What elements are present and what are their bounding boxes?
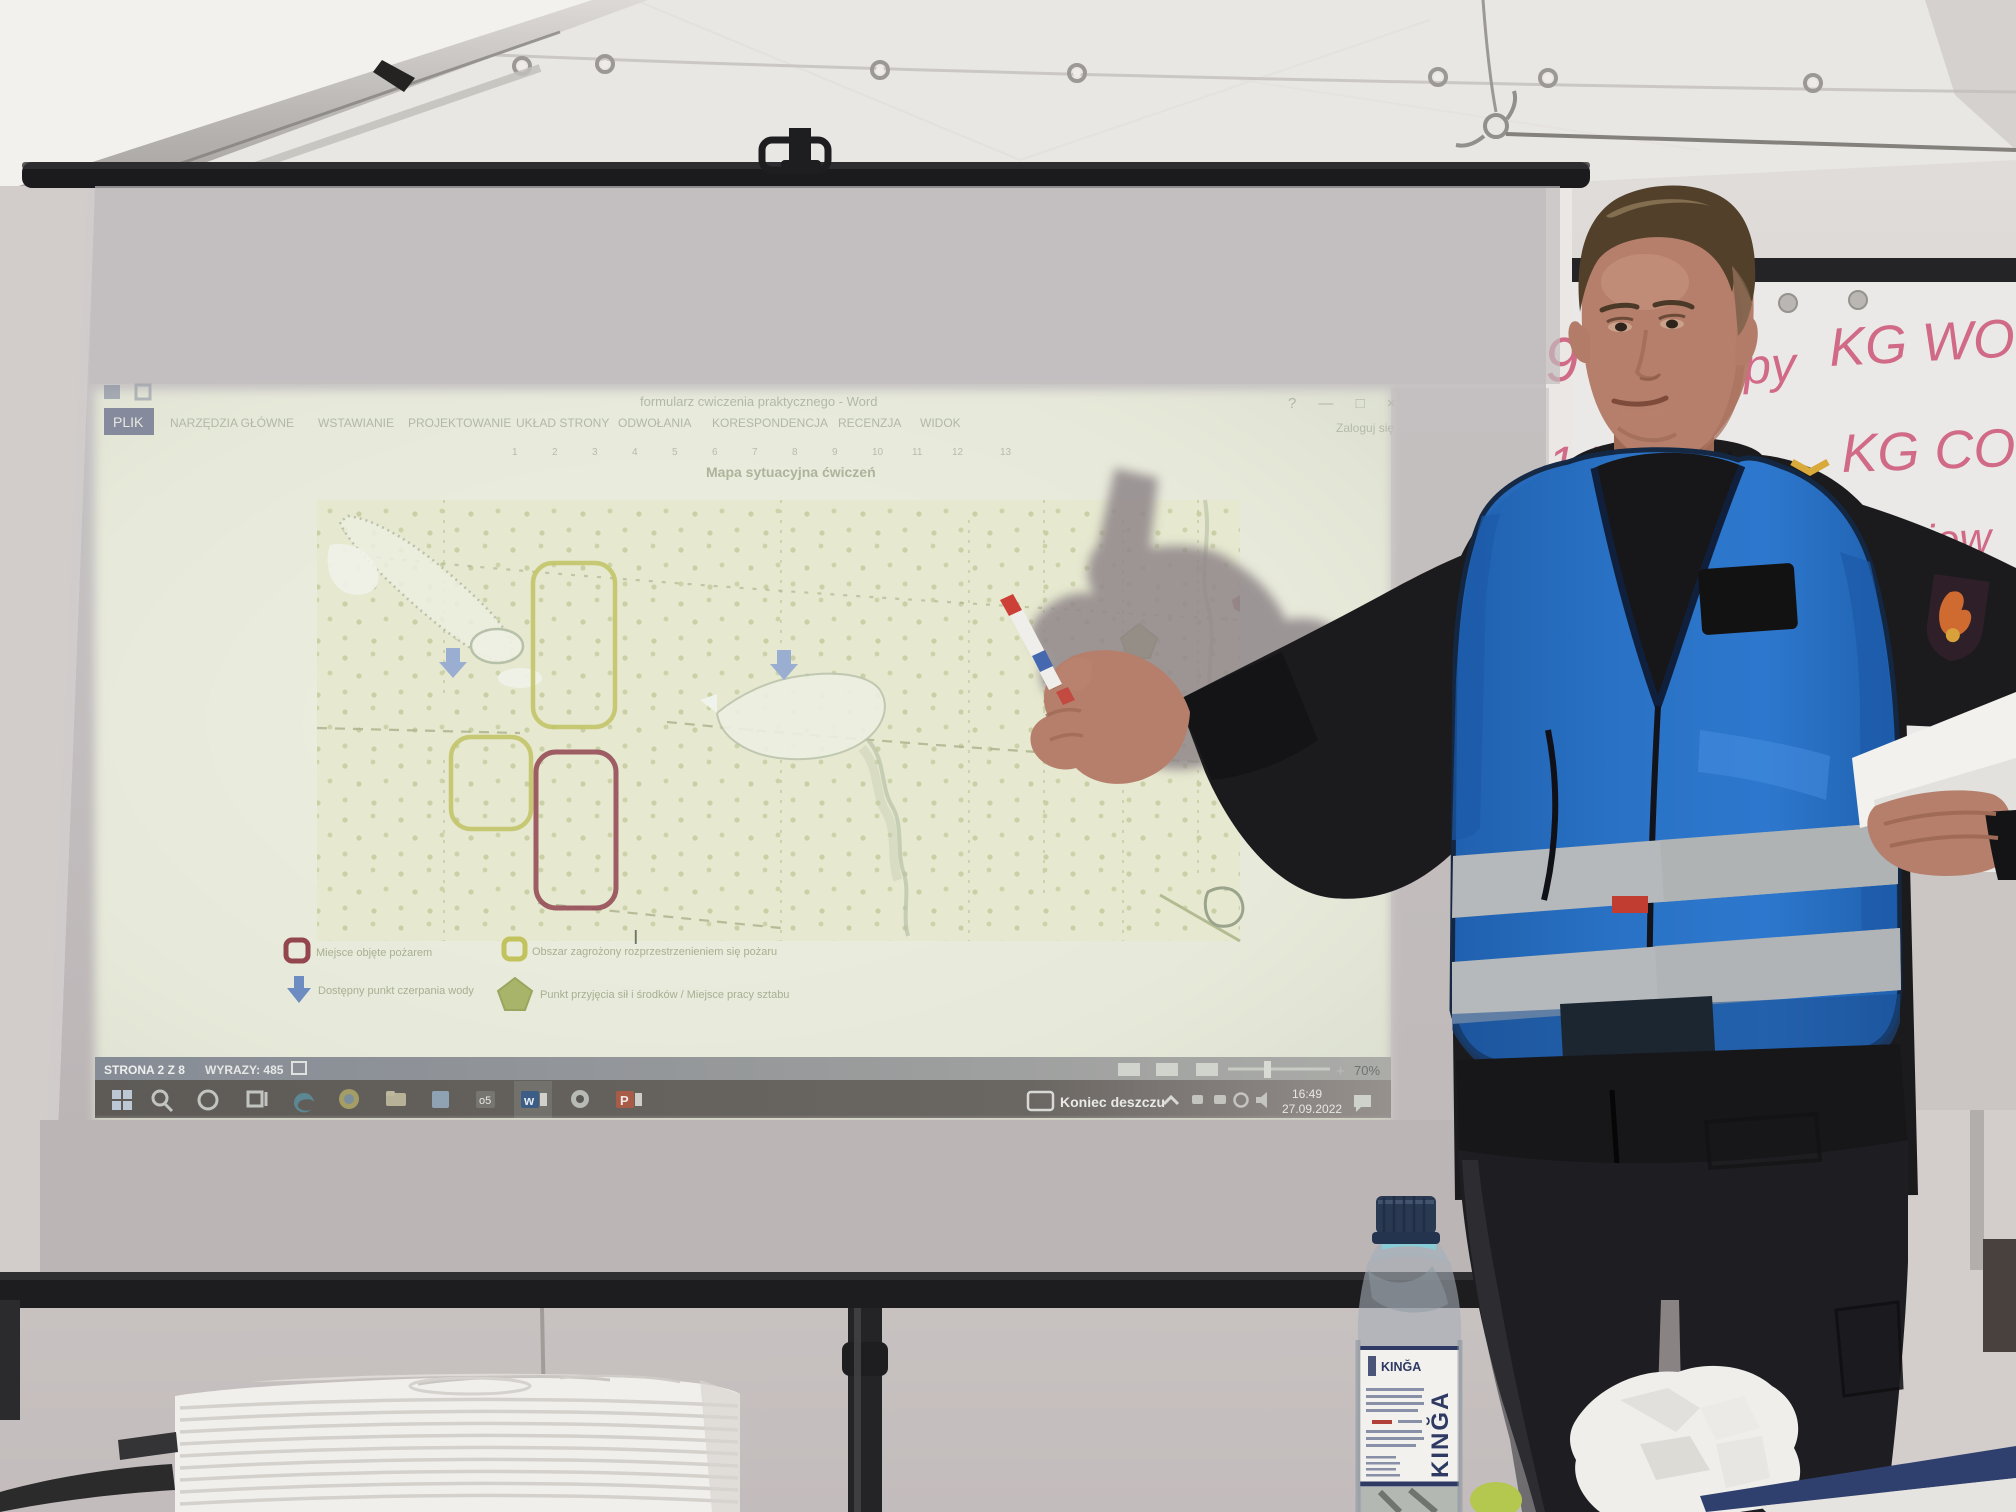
svg-text:w: w: [523, 1093, 535, 1108]
svg-text:PLIK: PLIK: [113, 414, 144, 430]
svg-text:11: 11: [912, 447, 923, 458]
svg-text:16:49: 16:49: [1292, 1087, 1322, 1101]
svg-text:STRONA 2 Z 8: STRONA 2 Z 8: [104, 1063, 185, 1077]
svg-text:9: 9: [832, 447, 838, 458]
svg-text:P: P: [620, 1093, 629, 1108]
svg-text:12: 12: [952, 447, 964, 458]
svg-text:1: 1: [512, 447, 518, 458]
svg-text:Zaloguj się: Zaloguj się: [1336, 421, 1394, 435]
svg-text:Miejsce objęte pożarem: Miejsce objęte pożarem: [316, 947, 432, 959]
svg-text:6: 6: [712, 447, 718, 458]
svg-text:27.09.2022: 27.09.2022: [1282, 1102, 1342, 1116]
svg-text:WIDOK: WIDOK: [920, 416, 961, 430]
svg-text:3: 3: [592, 447, 598, 458]
svg-text:70%: 70%: [1354, 1063, 1380, 1078]
svg-text:NARZĘDZIA GŁÓWNE: NARZĘDZIA GŁÓWNE: [170, 415, 294, 430]
svg-text:KINĞA: KINĞA: [1381, 1359, 1421, 1374]
svg-text:KG WOO: KG WOO: [1827, 306, 2016, 378]
svg-text:Koniec deszczu: Koniec deszczu: [1060, 1094, 1165, 1110]
svg-text:Dostępny punkt czerpania wody: Dostępny punkt czerpania wody: [318, 985, 474, 997]
svg-text:8: 8: [792, 447, 798, 458]
svg-text:WYRAZY: 485: WYRAZY: 485: [205, 1063, 284, 1077]
svg-text:PROJEKTOWANIE: PROJEKTOWANIE: [408, 416, 511, 430]
svg-text:formularz cwiczenia praktyczne: formularz cwiczenia praktycznego - Word: [640, 394, 877, 409]
svg-text:Obszar zagrożony rozprzestrzen: Obszar zagrożony rozprzestrzenieniem się…: [532, 946, 777, 958]
svg-text:10: 10: [872, 447, 884, 458]
svg-text:+: +: [1336, 1063, 1345, 1080]
svg-text:UKŁAD STRONY: UKŁAD STRONY: [516, 416, 609, 430]
svg-text:KINĞA: KINĞA: [1426, 1391, 1454, 1478]
svg-text:o5: o5: [479, 1095, 491, 1107]
svg-text:KG COO: KG COO: [1840, 416, 2016, 484]
svg-text:7: 7: [752, 447, 758, 458]
svg-text:Punkt przyjęcia sił i środków: Punkt przyjęcia sił i środków / Miejsce …: [540, 989, 789, 1001]
svg-text:2: 2: [552, 447, 558, 458]
svg-text:WSTAWIANIE: WSTAWIANIE: [318, 416, 394, 430]
svg-text:13: 13: [1000, 447, 1012, 458]
svg-text:ODWOŁANIA: ODWOŁANIA: [618, 416, 691, 430]
svg-text:5: 5: [672, 447, 678, 458]
svg-text:Mapa sytuacyjna ćwiczeń: Mapa sytuacyjna ćwiczeń: [706, 464, 876, 480]
svg-text:RECENZJA: RECENZJA: [838, 416, 901, 430]
svg-text:? — □ ×: ? — □ ×: [1288, 395, 1405, 412]
svg-text:KORESPONDENCJA: KORESPONDENCJA: [712, 416, 828, 430]
svg-text:4: 4: [632, 447, 638, 458]
